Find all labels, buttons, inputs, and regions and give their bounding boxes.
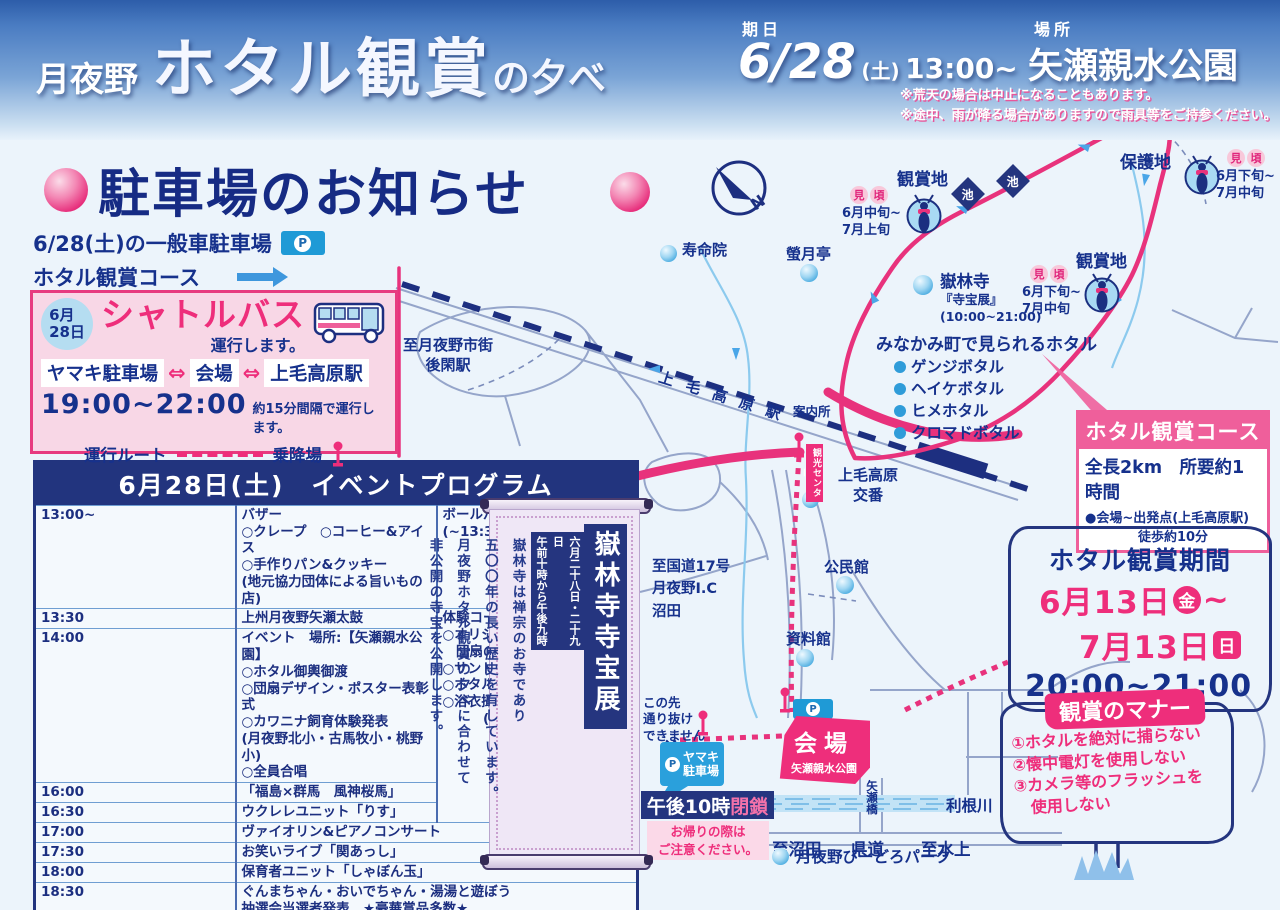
venue-area: 会場 矢瀬親水公園 — [778, 716, 870, 784]
yazebashi-label: 矢瀬橋 — [864, 780, 879, 815]
closing-note: お帰りの際は ご注意ください。 — [647, 821, 769, 860]
annaijo-label: 案内所 — [793, 404, 831, 420]
exhibition-date: 六月二十八日・二十九日 午前十時から午後九時 — [531, 532, 585, 650]
firefly-species: クロマドボタル — [894, 422, 1020, 444]
yamaki-parking-box: P ヤマキ 駐車場 — [660, 742, 724, 786]
to-tsukiyono-label: 至月夜野市街 後閑駅 — [398, 336, 498, 375]
shuttle-stop-yamaki: ヤマキ駐車場 — [41, 359, 164, 387]
program-time: 13:00~ — [35, 506, 236, 609]
weekday-fri-badge: 金 — [1173, 586, 1201, 614]
bus-stop-icon-map1 — [697, 710, 709, 740]
manners-list: ①ホタルを絶対に捕らない ②懐中電灯を使用しない ③カメラ等のフラッシュを 使用… — [1011, 721, 1233, 819]
firefly-species: ゲンジボタル — [894, 356, 1020, 378]
migoro-char2: 頃 — [1247, 149, 1265, 167]
migoro-char1: 見 — [850, 186, 868, 204]
route-legend-label: 運行ルート — [84, 442, 167, 466]
gakurinji-marker — [913, 275, 933, 295]
period-start-date: 6月13日 — [1039, 577, 1171, 622]
closing-time: 午後10時 — [647, 792, 730, 819]
scroll-body: 嶽林寺寺宝展 六月二十八日・二十九日 午前十時から午後九時 嶽林寺は禅宗のお寺で… — [489, 509, 640, 857]
migoro-char2: 頃 — [870, 186, 888, 204]
general-parking-label: 6/28(土)の一般車駐車場 — [33, 228, 272, 258]
program-time: 16:30 — [35, 803, 236, 823]
period-end-date: 7月13日 — [1079, 622, 1211, 667]
event-date: 6/28 (土) 13:00~ — [738, 34, 1018, 90]
period-title: ホタル観賞期間 — [1011, 541, 1269, 577]
protected-area-label: 保護地 — [1120, 152, 1171, 174]
firefly-species: ヒメホタル — [894, 400, 1020, 422]
course-legend-label: ホタル観賞コース — [33, 262, 200, 292]
route-dashed-icon — [177, 452, 263, 457]
date-value: 6/28 — [738, 34, 856, 90]
parking-letter: P — [665, 757, 680, 772]
tonegawa-label: 利根川 — [946, 796, 993, 816]
viewing-manners-box: 観賞のマナー ①ホタルを絶対に捕らない ②懐中電灯を使用しない ③カメラ等のフラ… — [1000, 702, 1234, 844]
program-time: 17:00 — [35, 823, 236, 843]
to-route17-label: 至国道17号 月夜野I.C 沼田 — [652, 556, 730, 623]
note-2: ※途中、雨が降る場合がありますので雨具等をご持参ください。 — [900, 108, 1277, 123]
migoro-char2: 頃 — [1050, 265, 1068, 283]
pond-label: 池 — [962, 185, 974, 202]
program-time: 17:30 — [35, 843, 236, 863]
shuttle-stop-station: 上毛高原駅 — [264, 359, 369, 387]
bullet-icon — [894, 383, 906, 395]
pond-label: 池 — [1007, 172, 1019, 189]
program-event: イベント 場所:【矢瀬親水公園】 ○ホタル御輿御渡 ○団扇デザイン・ポスター表彰… — [236, 629, 437, 783]
closing-word: 閉鎖 — [730, 792, 768, 819]
jumyoin-marker — [660, 245, 677, 262]
compass-icon: N — [713, 162, 769, 214]
firefly-icon-center — [1083, 270, 1121, 318]
program-event: ウクレレユニット「りす」 — [236, 803, 437, 823]
migoro-char1: 見 — [1030, 265, 1048, 283]
shiryokan-label: 資料館 — [786, 630, 831, 650]
bullet-icon — [894, 361, 906, 373]
general-parking-row: 6/28(土)の一般車駐車場 P — [33, 228, 325, 258]
double-arrow-icon: ⇔ — [168, 361, 186, 385]
migoro-badge-left: 見頃 — [850, 186, 888, 204]
program-event: ぐんまちゃん・おいでちゃん・湯湯と遊ぼう 抽選会当選者発表 ★豪華賞品多数★ (… — [236, 883, 638, 910]
shuttle-hours: 19:00~22:00 — [41, 389, 247, 420]
bus-icon — [313, 298, 387, 346]
exhibition-title: 嶽林寺寺宝展 — [584, 524, 627, 729]
program-event: バザー ○クレープ ○コーヒー&アイス ○手作りパン&クッキー (地元協力団体に… — [236, 506, 437, 609]
date-time: 13:00~ — [905, 52, 1018, 85]
bus-stop-icon-map3 — [793, 432, 805, 462]
course-length: 全長2km 所要約1時間 — [1085, 454, 1261, 504]
viewing-spot-left-label: 観賞地 — [897, 169, 948, 191]
period-tilde: ~ — [1203, 582, 1230, 618]
vidro-park-label: 月夜野びーどろパーク — [796, 847, 951, 867]
keigetsutei-label: 螢月亭 — [786, 245, 831, 265]
tourist-center-box: 観光センター — [806, 444, 823, 502]
parking-icon: P — [281, 231, 325, 255]
kominkan-label: 公民館 — [824, 558, 869, 578]
town-name: 月夜野 — [36, 52, 138, 101]
program-event: 上州月夜野矢瀬太鼓 — [236, 609, 437, 629]
parking-letter: P — [294, 235, 311, 252]
migoro-char1: 見 — [1227, 149, 1245, 167]
species-name: クロマドボタル — [911, 423, 1020, 443]
keigetsutei-marker — [800, 264, 818, 282]
event-title-sub: の夕べ — [492, 56, 606, 100]
kominkan-marker — [836, 576, 854, 594]
venue-parking-icon: P — [793, 699, 833, 719]
bullet-icon — [894, 405, 906, 417]
species-name: ヒメホタル — [911, 401, 989, 421]
venue-sublabel: 矢瀬親水公園 — [791, 760, 857, 776]
course-box-pointer — [1042, 354, 1114, 416]
viewing-period-box: ホタル観賞期間 6月13日 金 ~ 7月13日 日 20:00~21:00 — [1008, 526, 1272, 712]
migoro-badge-center: 見頃 — [1030, 265, 1068, 283]
program-time: 18:00 — [35, 863, 236, 883]
program-time: 18:30 — [35, 883, 236, 910]
date-weekday: (土) — [861, 59, 899, 83]
shuttle-name: シャトルバス — [101, 298, 305, 331]
shuttle-runs-label: 運行します。 — [101, 332, 305, 356]
shuttle-stop-venue: 会場 — [190, 359, 239, 387]
bus-stop-icon-map2 — [779, 687, 791, 717]
place-label: 場所 — [1034, 16, 1074, 40]
scroll-title-column: 嶽林寺寺宝展 六月二十八日・二十九日 午前十時から午後九時 — [531, 524, 628, 842]
weekday-sun-badge: 日 — [1213, 631, 1241, 659]
table-row: 18:30 ぐんまちゃん・おいでちゃん・湯湯と遊ぼう 抽選会当選者発表 ★豪華賞… — [35, 883, 638, 910]
exhibition-description: 嶽林寺は禅宗のお寺であり 五〇〇年の長い歴史を有しています。 月夜野ホタル観賞の… — [420, 524, 531, 843]
parking-letter: P — [806, 702, 820, 716]
viewing-period-center: 6月下旬~ 7月中旬 — [1022, 285, 1081, 319]
header-banner: 月夜野 ホタル観賞の夕べ 期日 6/28 (土) 13:00~ 場所 矢瀬親水公… — [0, 0, 1280, 140]
firefly-icon-left — [905, 191, 943, 239]
weather-notes: ※荒天の場合は中止になることもあります。 ※途中、雨が降る場合がありますので雨具… — [900, 86, 1277, 126]
scroll-roller-bottom — [482, 854, 651, 870]
temple-exhibition-scroll: 嶽林寺寺宝展 六月二十八日・二十九日 午前十時から午後九時 嶽林寺は禅宗のお寺で… — [489, 498, 640, 870]
firefly-list-title: みなかみ町で見られるホタル — [876, 334, 1097, 356]
program-event: 「福島×群馬 風神桜馬」 — [236, 783, 437, 803]
program-time: 16:00 — [35, 783, 236, 803]
course-arrow-icon — [237, 273, 273, 281]
program-time: 13:30 — [35, 609, 236, 629]
species-name: ヘイケボタル — [911, 379, 1004, 399]
note-1: ※荒天の場合は中止になることもあります。 — [900, 88, 1158, 103]
shuttle-date-badge: 6月 28日 — [41, 298, 93, 350]
stop-legend-label: 乗降場 — [273, 442, 323, 466]
event-title: ホタル観賞の夕べ — [152, 18, 606, 110]
vidro-park-marker — [772, 848, 789, 865]
firefly-species: ヘイケボタル — [894, 378, 1020, 400]
program-time: 14:00 — [35, 629, 236, 783]
bullet-icon — [894, 427, 906, 439]
event-title-main: ホタル観賞 — [152, 33, 492, 107]
place-name: 矢瀬親水公園 — [1028, 38, 1238, 89]
course-legend-row: ホタル観賞コース — [33, 262, 273, 292]
viewing-period-left: 6月中旬~ 7月上旬 — [842, 206, 901, 240]
page-title: 駐車場のお知らせ — [98, 152, 529, 227]
yamaki-label: ヤマキ 駐車場 — [683, 750, 719, 779]
closing-time-box: 午後10時 閉鎖 — [641, 791, 774, 819]
manner-signposts — [1074, 844, 1134, 880]
shuttle-bus-box: 6月 28日 シャトルバス 運行します。 ヤマキ駐車場 ⇔ 会場 ⇔ 上毛高原駅 — [30, 290, 398, 454]
pink-sphere-left — [44, 168, 88, 212]
pink-sphere-right — [610, 172, 650, 212]
venue-label: 会場 — [794, 724, 854, 758]
course-start: ●会場~出発点(上毛高原駅) — [1085, 507, 1261, 526]
migoro-badge-top: 見頃 — [1227, 149, 1265, 167]
bus-stop-icon — [332, 441, 344, 467]
shiryokan-marker — [796, 649, 814, 667]
viewing-period-top: 6月下旬~ 7月中旬 — [1216, 169, 1275, 203]
jumyoin-label: 寿命院 — [682, 241, 727, 261]
double-arrow-icon-2: ⇔ — [243, 361, 261, 385]
shuttle-interval: 約15分間隔で運行します。 — [253, 398, 387, 436]
koban-label: 上毛高原 交番 — [838, 466, 898, 505]
firefly-list: ゲンジボタル ヘイケボタル ヒメホタル クロマドボタル — [894, 356, 1020, 444]
course-box-title: ホタル観賞コース — [1079, 413, 1267, 449]
species-name: ゲンジボタル — [911, 357, 1004, 377]
flyer-page: N 月夜野 ホタル観賞の夕べ 期日 6/28 (土) 13:00~ 場所 矢瀬親… — [0, 0, 1280, 910]
